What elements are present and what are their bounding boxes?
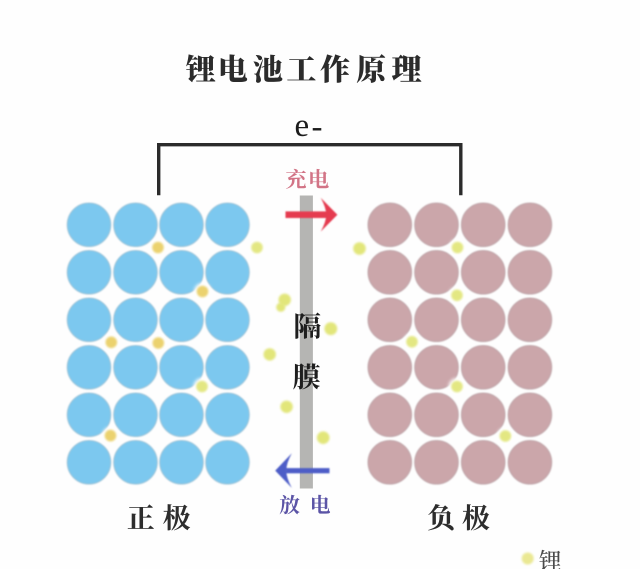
svg-text:e: e [295, 108, 310, 144]
svg-text:-: - [312, 109, 323, 145]
